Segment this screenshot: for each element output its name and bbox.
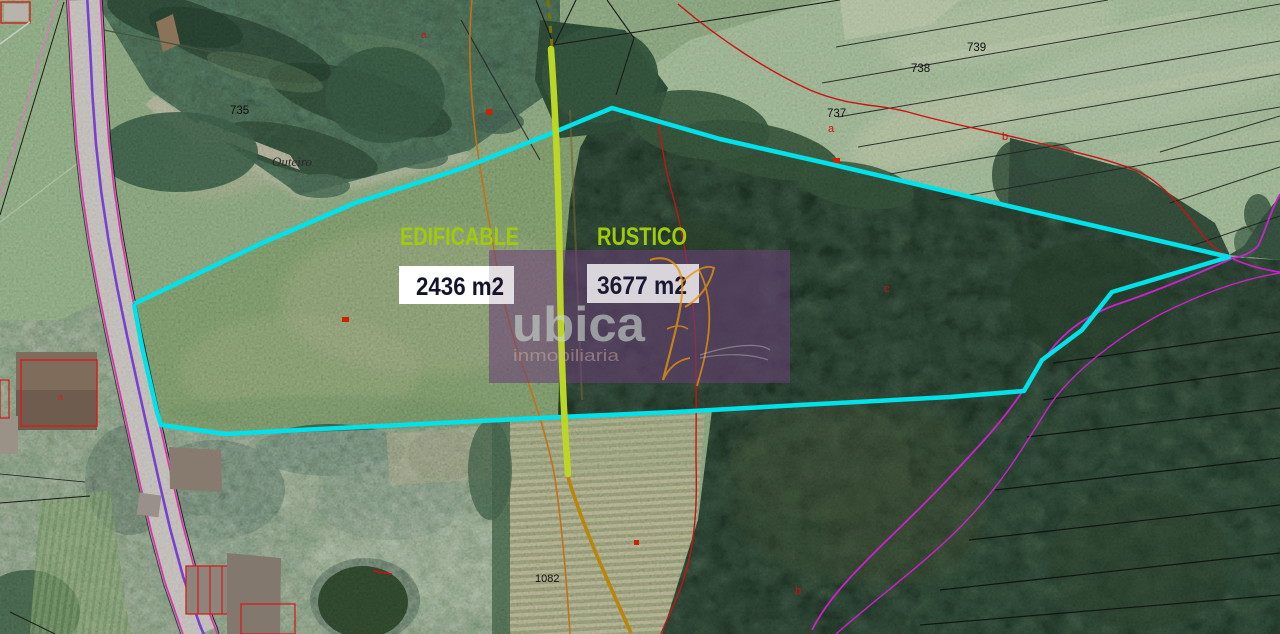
svg-text:a: a — [58, 392, 63, 402]
svg-text:b: b — [795, 585, 801, 597]
svg-text:c: c — [884, 283, 890, 295]
svg-text:739: 739 — [967, 42, 986, 54]
svg-text:a: a — [421, 30, 427, 41]
svg-text:RUSTICO: RUSTICO — [597, 223, 687, 251]
svg-text:3677 m2: 3677 m2 — [597, 272, 687, 300]
svg-text:735: 735 — [230, 105, 249, 117]
svg-text:737: 737 — [827, 108, 846, 120]
svg-text:a: a — [828, 123, 835, 135]
svg-text:Outeiro: Outeiro — [272, 154, 312, 169]
svg-text:1082: 1082 — [535, 573, 559, 585]
svg-text:2436 m2: 2436 m2 — [416, 273, 504, 301]
svg-text:738: 738 — [911, 63, 930, 75]
svg-text:inmobiliaria: inmobiliaria — [513, 347, 620, 365]
svg-text:ubica: ubica — [512, 298, 646, 352]
svg-text:b: b — [1002, 131, 1008, 143]
svg-text:EDIFICABLE: EDIFICABLE — [400, 223, 519, 251]
